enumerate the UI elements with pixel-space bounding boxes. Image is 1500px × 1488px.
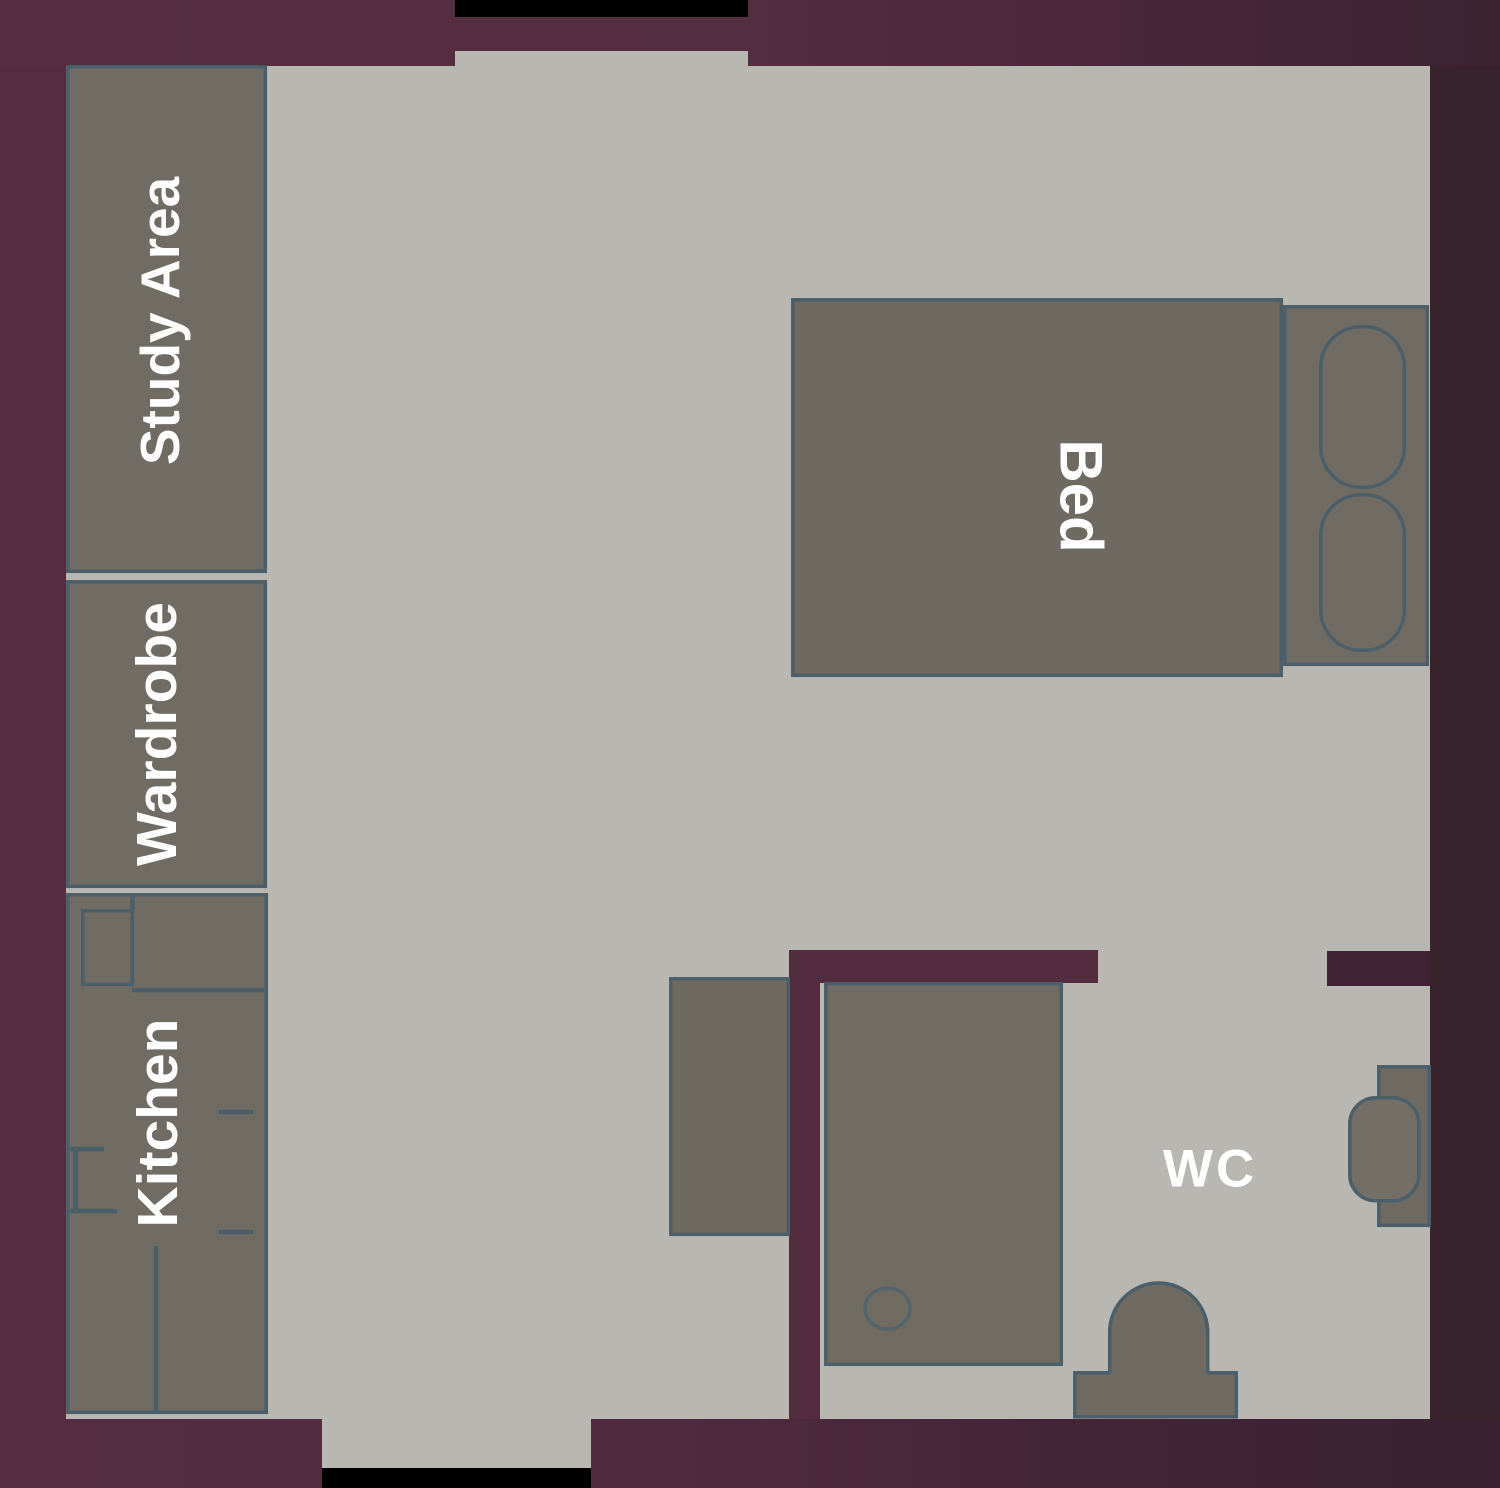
svg-text:Study Area: Study Area — [129, 176, 191, 465]
svg-text:WC: WC — [1163, 1140, 1257, 1199]
svg-text:Kitchen: Kitchen — [126, 1018, 190, 1227]
svg-text:Bed: Bed — [1048, 439, 1115, 552]
svg-text:Wardrobe: Wardrobe — [125, 602, 189, 866]
